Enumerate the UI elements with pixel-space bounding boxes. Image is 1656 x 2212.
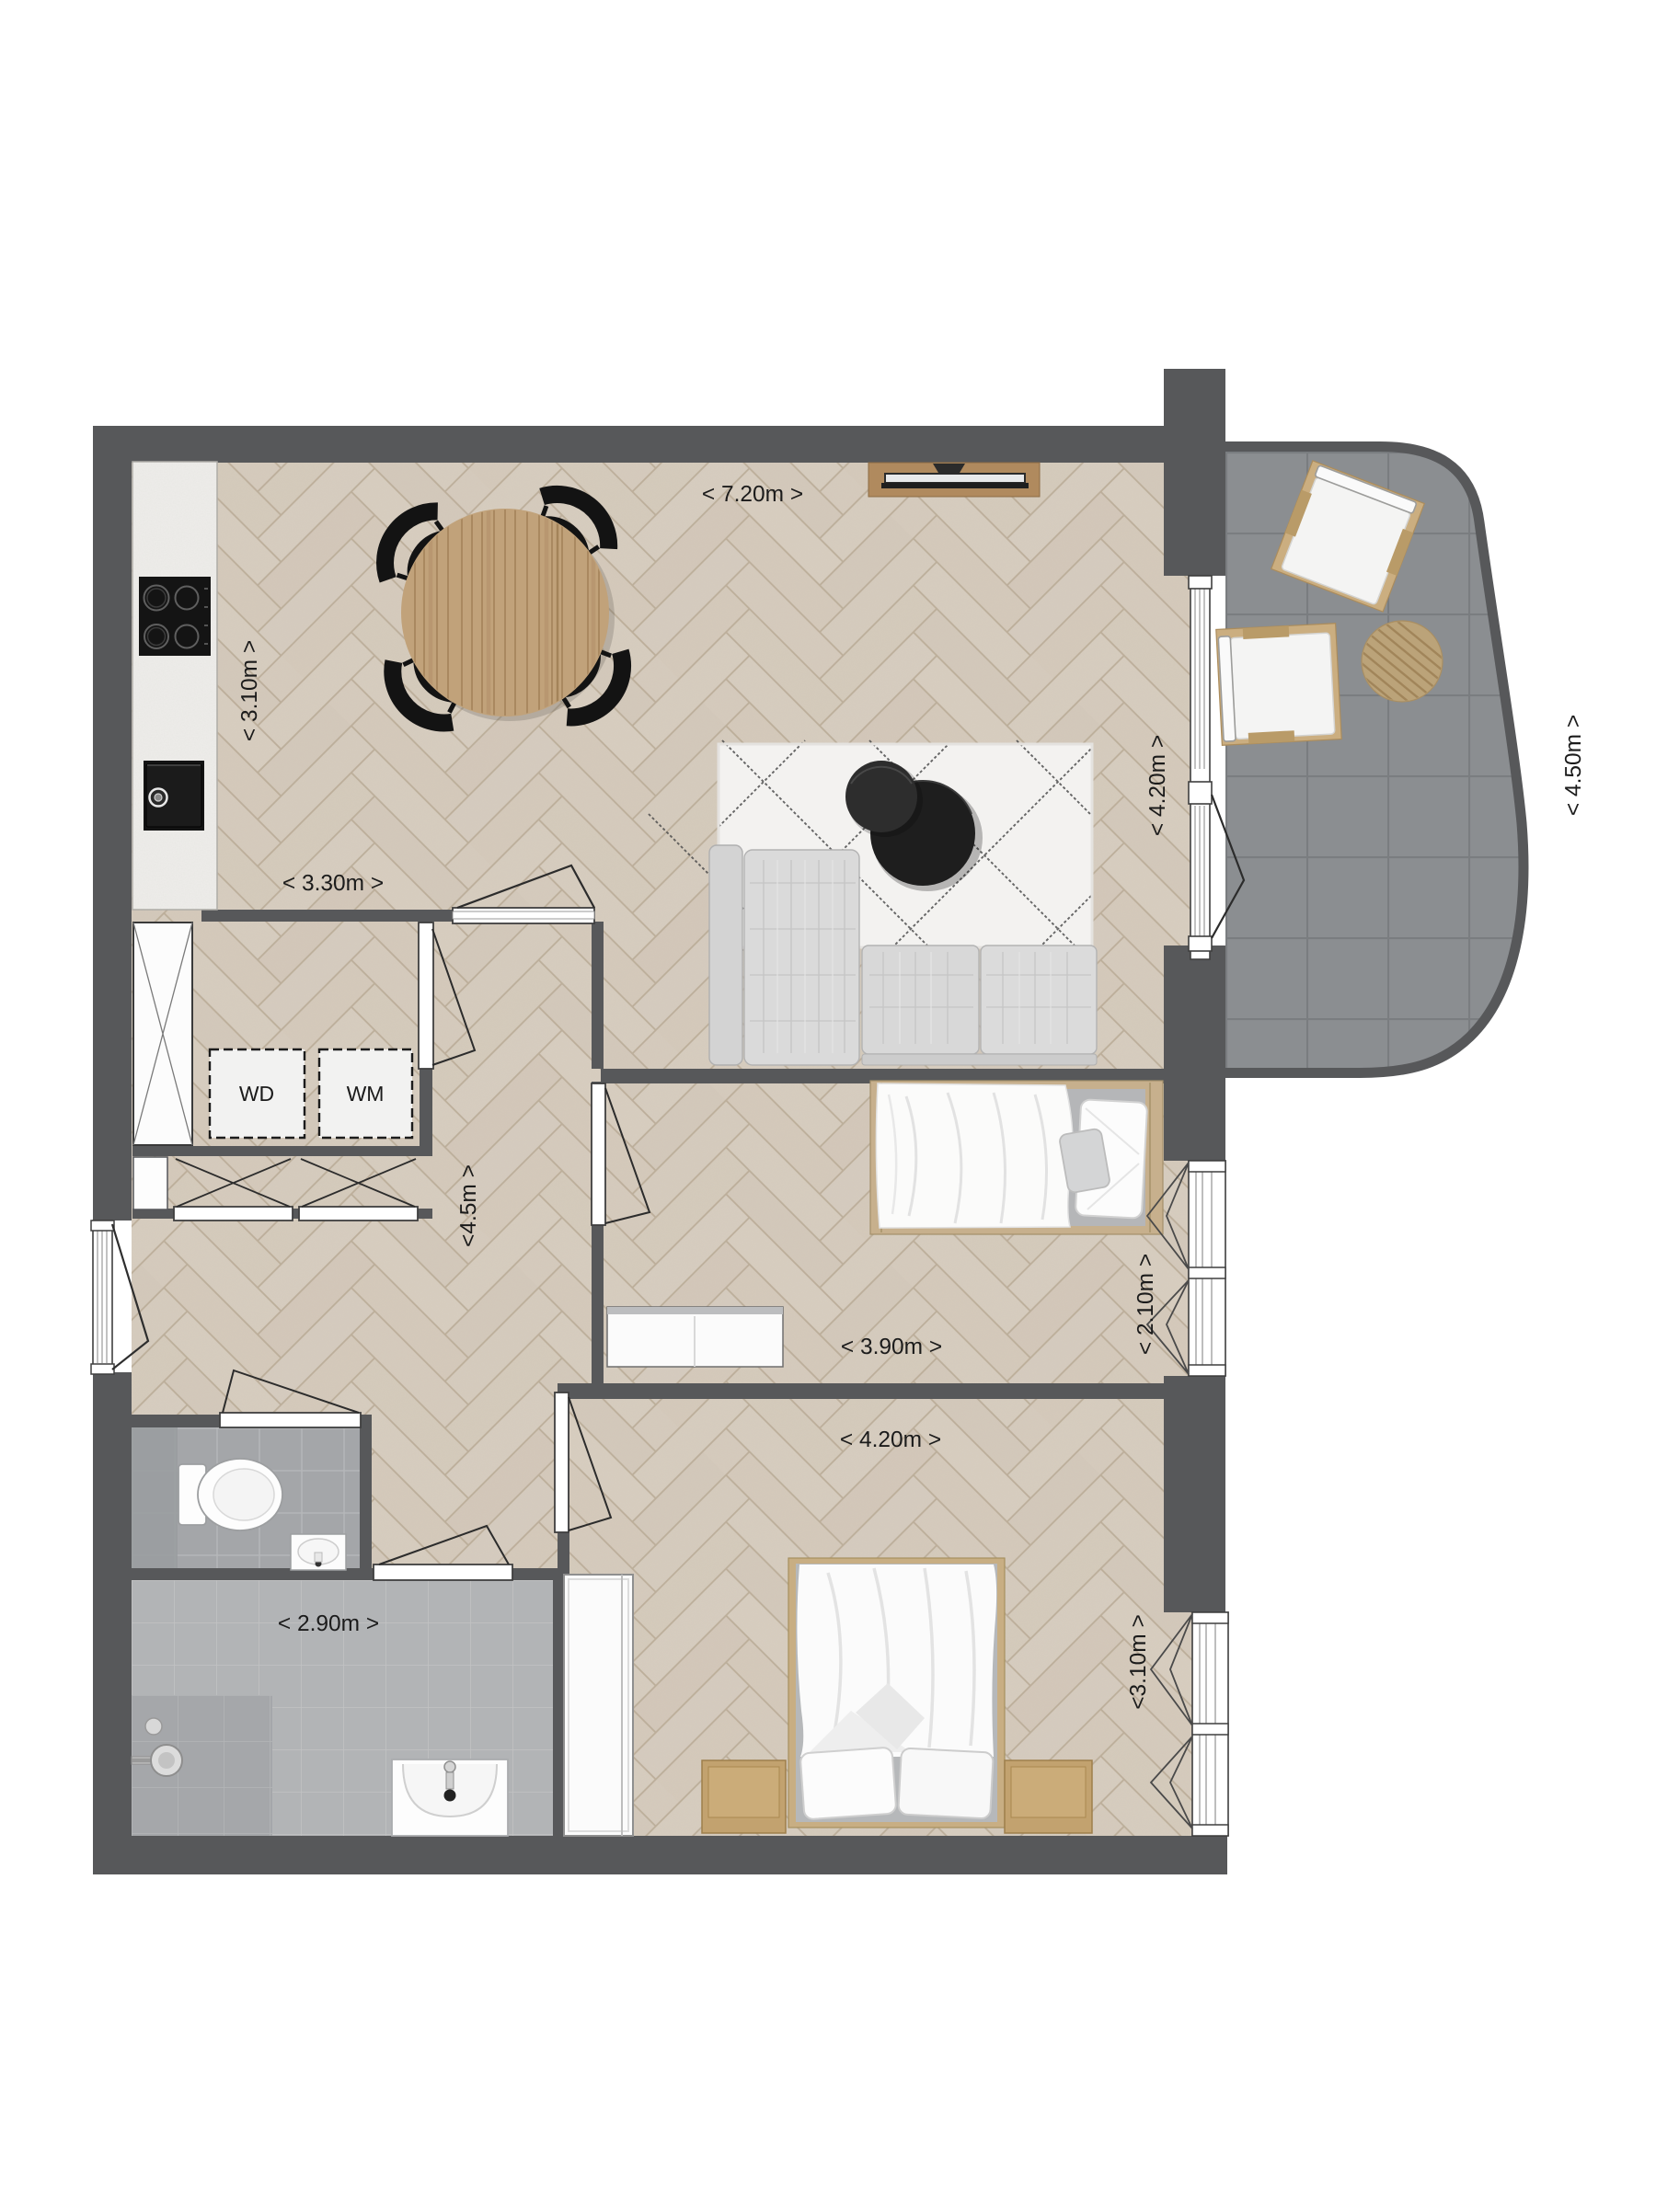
- svg-text:< 3.30m >: < 3.30m >: [282, 871, 384, 896]
- svg-text:<3.10m >: <3.10m >: [1126, 1614, 1151, 1710]
- svg-text:< 2.10m >: < 2.10m >: [1133, 1254, 1158, 1355]
- svg-text:< 3.90m >: < 3.90m >: [841, 1335, 942, 1359]
- svg-text:< 4.20m >: < 4.20m >: [1145, 735, 1170, 836]
- svg-text:< 2.90m >: < 2.90m >: [278, 1611, 379, 1636]
- svg-text:< 3.10m >: < 3.10m >: [237, 640, 262, 741]
- svg-text:WD: WD: [239, 1082, 274, 1106]
- svg-text:<4.5m >: <4.5m >: [456, 1164, 481, 1247]
- svg-text:< 4.20m >: < 4.20m >: [840, 1427, 941, 1452]
- svg-text:< 7.20m >: < 7.20m >: [702, 482, 803, 507]
- svg-text:< 4.50m >: < 4.50m >: [1561, 715, 1586, 816]
- svg-text:WM: WM: [347, 1082, 385, 1106]
